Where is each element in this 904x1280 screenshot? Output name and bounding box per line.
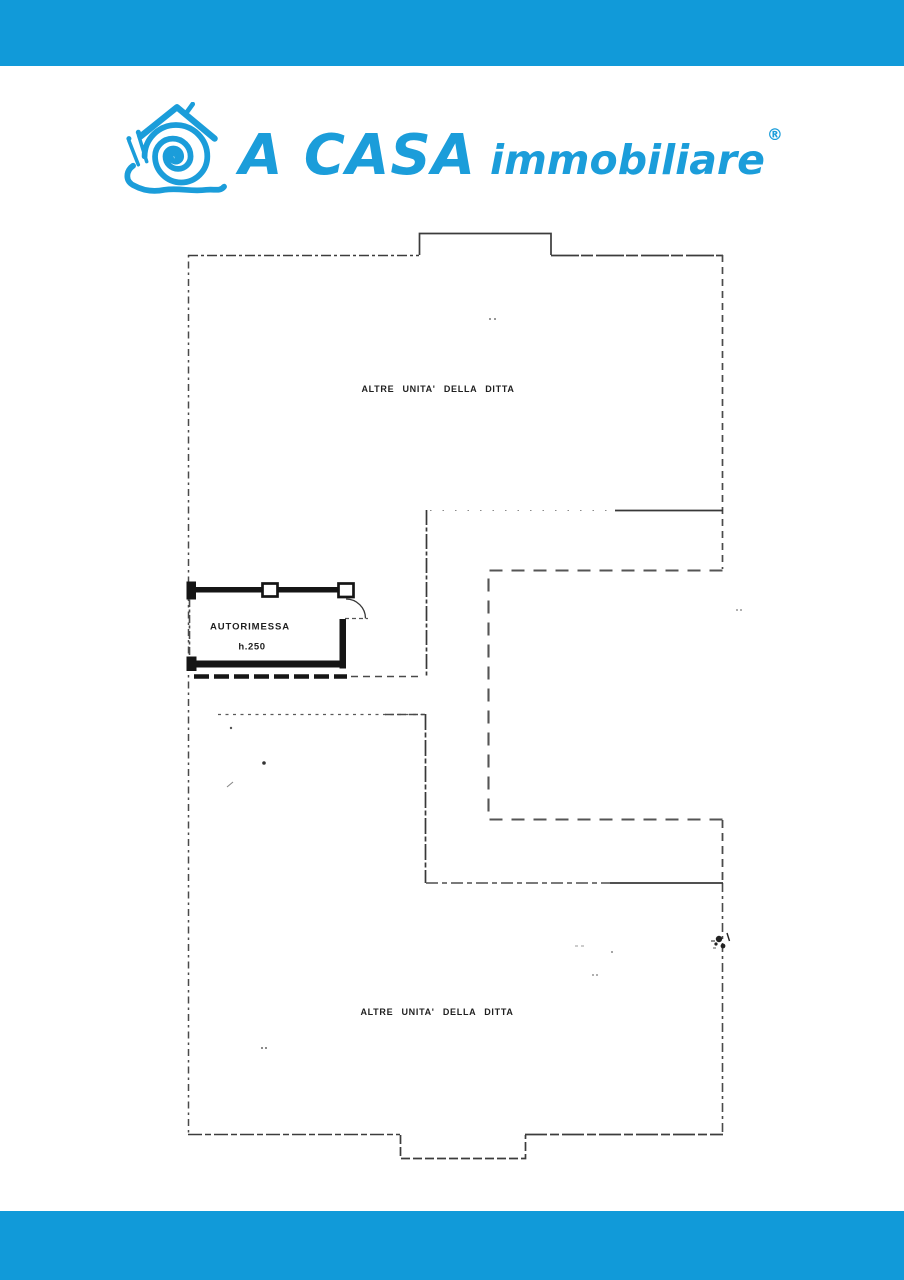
outer-boundary [188,234,723,1159]
garage-left-jamb [187,582,197,600]
floor-plan-drawing [0,0,904,1280]
garage-right-jamb [339,584,354,598]
label-bottom-area: ALTRE UNITA' DELLA DITTA [360,1007,513,1017]
label-garage-height: h.250 [238,642,265,653]
bottom-blue-bar [0,1211,904,1280]
interior-walls [194,510,723,883]
garage-mid-jamb [263,584,278,597]
label-garage: AUTORIMESSA [210,622,290,633]
floor-plan: ALTRE UNITA' DELLA DITTA AUTORIMESSA h.2… [0,0,904,1280]
ink-blot [711,933,730,948]
door-swing-arc [346,599,366,619]
garage-bottom-left-jamb [187,657,197,672]
label-top-area: ALTRE UNITA' DELLA DITTA [361,384,514,394]
scan-artifacts [227,318,742,1049]
garage-bottom-wall [191,661,346,668]
page: A CASA immobiliare ® [0,0,904,1280]
